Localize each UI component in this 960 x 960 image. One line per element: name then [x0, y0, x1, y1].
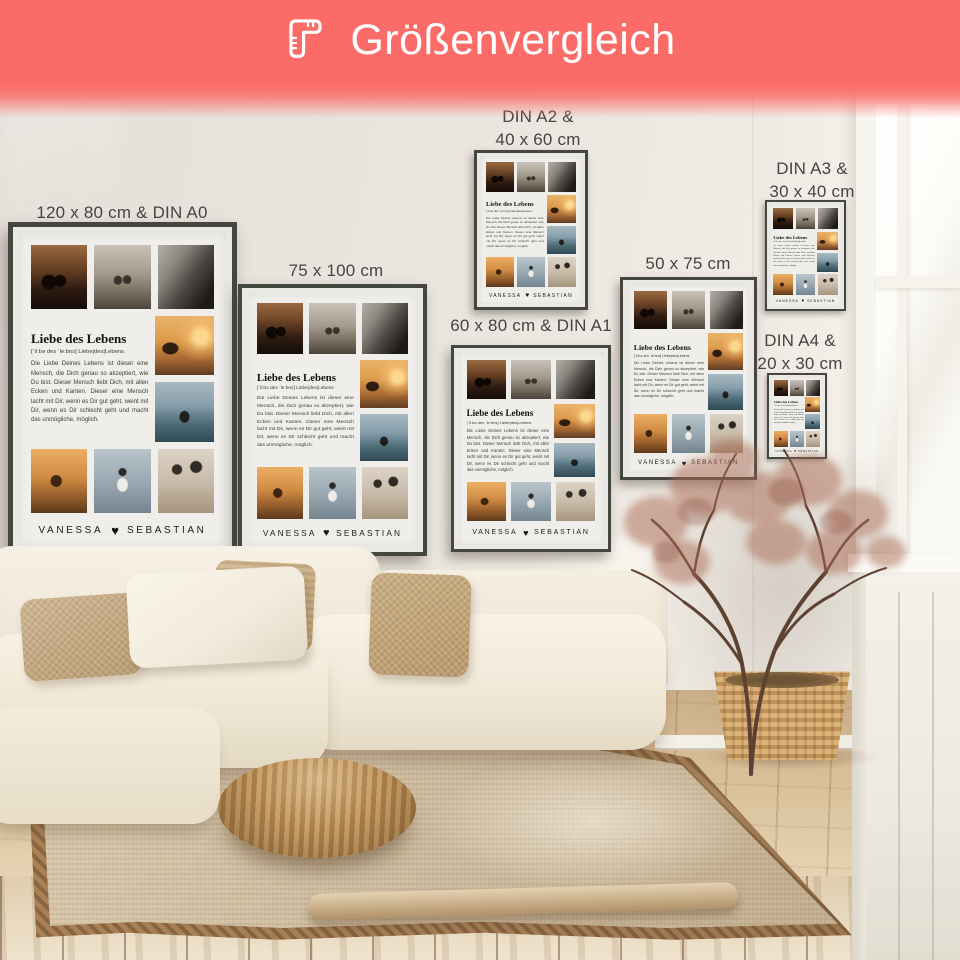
living-room-scene: 120 x 80 cm & DIN A0 Liebe des Lebens [ˈ…: [0, 0, 960, 960]
photo-closeup-portrait-bw: [158, 245, 214, 309]
photo-sunset-silhouette-couple: [486, 162, 514, 192]
poster-photo-row-top: [773, 208, 837, 229]
poster-phonetic: [ˈliːbə des ˈleːbns] Liebe|des|Lebens: [467, 420, 550, 425]
heart-icon: ♥: [525, 292, 529, 299]
photo-beach-embrace-couple: [309, 467, 356, 519]
banner-content: Größenvergleich: [284, 14, 675, 67]
poster-name-right: SEBASTIAN: [807, 299, 835, 303]
photo-beach-sunset-couple: [547, 195, 576, 222]
poster-body-text: Die Liebe Deines Lebens ist dieser eine …: [467, 428, 550, 474]
pillow-beige-right: [368, 572, 471, 677]
poster-body-text: Die Liebe Deines Lebens ist dieser eine …: [634, 361, 704, 400]
poster-phonetic: [ˈliːbə des ˈleːbns] Liebe|des|Lebens: [257, 386, 354, 391]
poster-body-text: Die Liebe Deines Lebens ist dieser eine …: [486, 216, 544, 248]
photo-face-to-face-couple: [158, 449, 214, 513]
photo-mountain-walk-couple: [790, 380, 804, 396]
photo-lake-view-couple: [360, 414, 408, 462]
photo-closeup-portrait-bw: [556, 360, 596, 399]
photo-mountain-walk-couple: [517, 162, 545, 192]
poster-artwork: Liebe des Lebens [ˈliːbə des ˈleːbns] Li…: [480, 156, 582, 304]
photo-golden-hour-couple: [773, 274, 793, 295]
pillow-beige-left: [19, 592, 142, 682]
poster-a3: Liebe des Lebens [ˈliːbə des ˈleːbns] Li…: [765, 200, 846, 311]
size-label-text: DIN A3 &: [769, 158, 854, 181]
photo-sunset-silhouette-couple: [773, 208, 793, 229]
size-label-text: 75 x 100 cm: [289, 260, 384, 283]
photo-beach-sunset-couple: [708, 333, 743, 369]
heart-icon: ♥: [323, 527, 329, 539]
poster-photo-row-top: [31, 245, 214, 309]
photo-closeup-portrait-bw: [818, 208, 838, 229]
poster-couple-names: VANESSA ♥ SEBASTIAN: [773, 295, 837, 307]
poster-photo-row-top: [467, 360, 596, 399]
poster-text-block: Liebe des Lebens [ˈliːbə des ˈleːbns] Li…: [31, 316, 148, 443]
poster-photo-row-bottom: [257, 467, 408, 519]
size-comparison-banner: Größenvergleich: [0, 0, 960, 118]
photo-golden-hour-couple: [257, 467, 304, 519]
heart-icon: ♥: [802, 298, 805, 303]
photo-beach-sunset-couple: [155, 316, 214, 376]
poster-middle-section: Liebe des Lebens [ˈliːbə des ˈleːbns] Li…: [634, 333, 743, 410]
poster-name-left: VANESSA: [776, 299, 799, 303]
poster-photo-column: [360, 360, 408, 461]
photo-beach-embrace-couple: [517, 257, 545, 287]
banner-title: Größenvergleich: [350, 16, 675, 65]
poster-text-block: Liebe des Lebens [ˈliːbə des ˈleːbns] Li…: [634, 333, 704, 410]
photo-closeup-portrait-bw: [362, 303, 409, 355]
poster-phonetic: [ˈliːbə des ˈleːbns] Liebe|des|Lebens: [634, 354, 704, 358]
poster-a2: Liebe des Lebens [ˈliːbə des ˈleːbns] Li…: [474, 150, 588, 310]
size-label-text: 120 x 80 cm & DIN A0: [36, 202, 207, 225]
heart-icon: ♥: [111, 523, 119, 538]
poster-photo-row-top: [634, 291, 743, 330]
poster-name-right: SEBASTIAN: [127, 525, 207, 536]
poster-text-block: Liebe des Lebens [ˈliːbə des ˈleːbns] Li…: [257, 360, 354, 461]
poster-artwork: Liebe des Lebens [ˈliːbə des ˈleːbns] Li…: [769, 204, 842, 307]
photo-mountain-walk-couple: [511, 360, 551, 399]
poster-middle-section: Liebe des Lebens [ˈliːbə des ˈleːbns] Li…: [257, 360, 408, 461]
poster-photo-row-top: [257, 303, 408, 355]
poster-name-right: SEBASTIAN: [533, 293, 573, 299]
photo-mountain-walk-couple: [309, 303, 356, 355]
poster-photo-row-bottom: [31, 449, 214, 513]
poster-title: Liebe des Lebens: [467, 408, 550, 418]
poster-middle-section: Liebe des Lebens [ˈliːbə des ˈleːbns] Li…: [773, 232, 837, 272]
photo-beach-embrace-couple: [796, 274, 816, 295]
poster-phonetic: [ˈliːbə des ˈleːbns] Liebe|des|Lebens: [31, 349, 148, 355]
photo-face-to-face-couple: [818, 274, 838, 295]
poster-photo-column: [708, 333, 743, 410]
poster-text-block: Liebe des Lebens [ˈliːbə des ˈleːbns] Li…: [486, 195, 544, 253]
poster-couple-names: VANESSA ♥ SEBASTIAN: [486, 287, 576, 304]
sofa-seat-front-left: [0, 708, 220, 824]
poster-name-right: SEBASTIAN: [534, 529, 590, 536]
size-label-a1: 60 x 80 cm & DIN A1: [450, 315, 612, 338]
photo-closeup-portrait-bw: [710, 291, 744, 330]
photo-golden-hour-couple: [486, 257, 514, 287]
photo-beach-embrace-couple: [511, 482, 551, 521]
poster-name-left: VANESSA: [472, 529, 517, 536]
poster-phonetic: [ˈliːbə des ˈleːbns] Liebe|des|Lebens: [486, 209, 544, 213]
poster-middle-section: Liebe des Lebens [ˈliːbə des ˈleːbns] Li…: [486, 195, 576, 253]
size-label-a3: DIN A3 &30 x 40 cm: [769, 158, 854, 203]
poster-photo-row-top: [486, 162, 576, 192]
photo-sunset-silhouette-couple: [467, 360, 507, 399]
size-label-a4: DIN A4 &20 x 30 cm: [757, 330, 842, 375]
photo-mountain-walk-couple: [796, 208, 816, 229]
poster-photo-column: [155, 316, 214, 443]
size-label-p75: 75 x 100 cm: [289, 260, 384, 283]
poster-photo-row-bottom: [486, 257, 576, 287]
size-label-a0: 120 x 80 cm & DIN A0: [36, 202, 207, 225]
poster-phonetic: [ˈliːbə des ˈleːbns] Liebe|des|Lebens: [773, 241, 814, 243]
photo-golden-hour-couple: [467, 482, 507, 521]
poster-body-text: Die Liebe Deines Lebens ist dieser eine …: [257, 395, 354, 449]
poster-photo-row-top: [774, 380, 821, 396]
poster-name-left: VANESSA: [489, 293, 521, 299]
poster-name-right: SEBASTIAN: [336, 528, 402, 538]
heart-icon: ♥: [523, 528, 528, 538]
photo-sunset-silhouette-couple: [31, 245, 87, 309]
photo-closeup-portrait-bw: [548, 162, 576, 192]
poster-body-text: Die Liebe Deines Lebens ist dieser eine …: [31, 360, 148, 425]
poster-title: Liebe des Lebens: [486, 201, 544, 208]
photo-beach-sunset-couple: [360, 360, 408, 408]
photo-lake-view-couple: [155, 382, 214, 442]
woven-pouf: [218, 758, 416, 858]
poster-name-left: VANESSA: [39, 525, 104, 536]
size-label-text: 30 x 40 cm: [769, 181, 854, 204]
size-label-p50: 50 x 75 cm: [645, 253, 730, 276]
size-label-text: 40 x 60 cm: [495, 129, 580, 152]
photo-lake-view-couple: [817, 253, 838, 272]
corner-ruler-icon: [284, 14, 332, 67]
poster-photo-row-bottom: [467, 482, 596, 521]
poster-body-text: Die Liebe Deines Lebens ist dieser eine …: [773, 245, 814, 268]
size-label-text: 20 x 30 cm: [757, 353, 842, 376]
poster-middle-section: Liebe des Lebens [ˈliːbə des ˈleːbns] Li…: [467, 404, 596, 477]
photo-lake-view-couple: [547, 226, 576, 253]
poster-artwork: Liebe des Lebens [ˈliːbə des ˈleːbns] Li…: [458, 352, 604, 545]
poster-a0: Liebe des Lebens [ˈliːbə des ˈleːbns] Li…: [8, 222, 237, 558]
poster-couple-names: VANESSA ♥ SEBASTIAN: [31, 513, 214, 547]
poster-middle-section: Liebe des Lebens [ˈliːbə des ˈleːbns] Li…: [31, 316, 214, 443]
poster-name-left: VANESSA: [263, 528, 317, 538]
photo-mountain-walk-couple: [94, 245, 150, 309]
photo-golden-hour-couple: [31, 449, 87, 513]
poster-title: Liebe des Lebens: [257, 372, 354, 384]
poster-artwork: Liebe des Lebens [ˈliːbə des ˈleːbns] Li…: [247, 293, 418, 547]
photo-mountain-walk-couple: [672, 291, 706, 330]
size-label-text: 60 x 80 cm & DIN A1: [450, 315, 612, 338]
photo-beach-embrace-couple: [94, 449, 150, 513]
photo-face-to-face-couple: [548, 257, 576, 287]
photo-closeup-portrait-bw: [806, 380, 820, 396]
size-label-text: DIN A4 &: [757, 330, 842, 353]
photo-beach-sunset-couple: [817, 232, 838, 251]
poster-text-block: Liebe des Lebens [ˈliːbə des ˈleːbns] Li…: [773, 232, 814, 272]
poster-photo-column: [817, 232, 838, 272]
dried-tree-branches: [586, 402, 916, 782]
poster-couple-names: VANESSA ♥ SEBASTIAN: [467, 521, 596, 545]
poster-photo-row-bottom: [773, 274, 837, 295]
photo-sunset-silhouette-couple: [257, 303, 304, 355]
poster-title: Liebe des Lebens: [31, 332, 148, 347]
poster-p75: Liebe des Lebens [ˈliːbə des ˈleːbns] Li…: [238, 284, 427, 556]
photo-face-to-face-couple: [362, 467, 409, 519]
poster-text-block: Liebe des Lebens [ˈliːbə des ˈleːbns] Li…: [467, 404, 550, 477]
poster-artwork: Liebe des Lebens [ˈliːbə des ˈleːbns] Li…: [19, 233, 226, 547]
size-label-text: 50 x 75 cm: [645, 253, 730, 276]
photo-sunset-silhouette-couple: [634, 291, 668, 330]
pillow-white: [126, 565, 309, 668]
photo-sunset-silhouette-couple: [774, 380, 788, 396]
poster-couple-names: VANESSA ♥ SEBASTIAN: [257, 519, 408, 547]
poster-title: Liebe des Lebens: [634, 344, 704, 353]
poster-photo-column: [547, 195, 576, 253]
poster-title: Liebe des Lebens: [773, 235, 814, 240]
